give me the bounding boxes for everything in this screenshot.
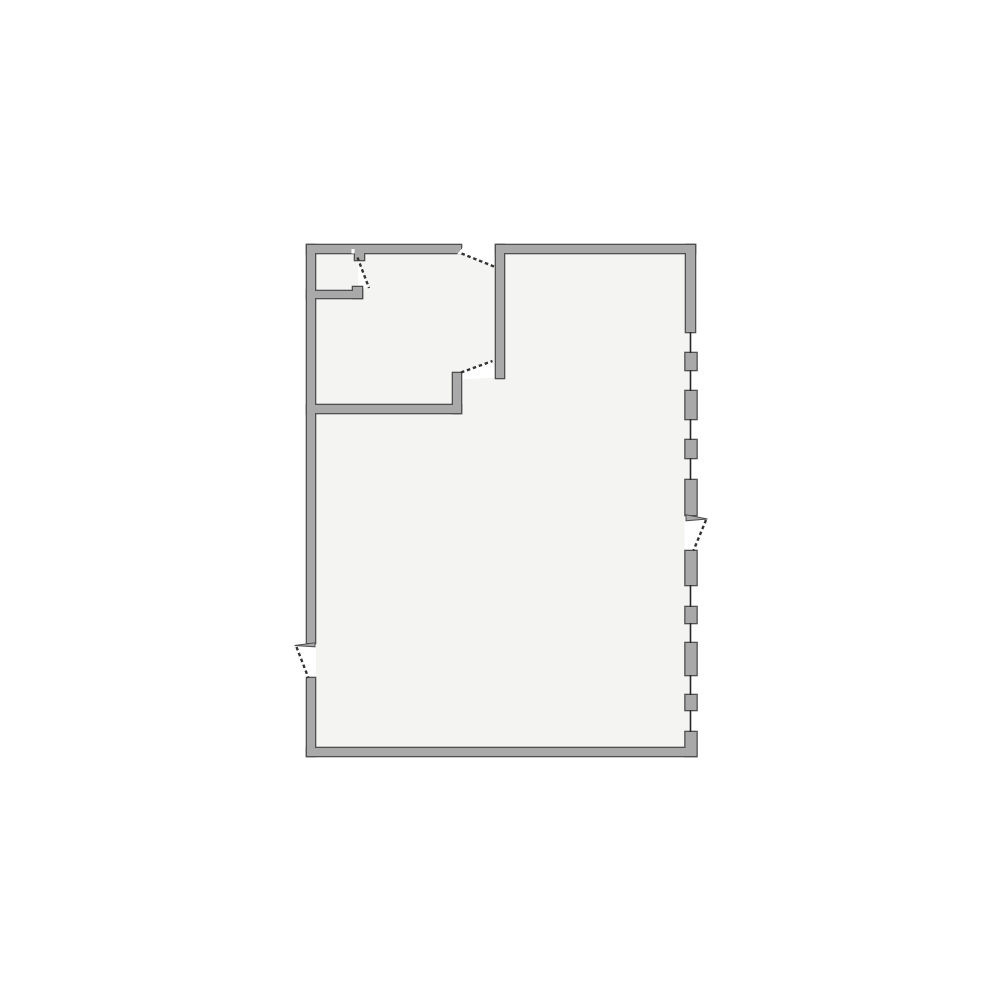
left-door-jamb-sliver (295, 643, 316, 647)
window-mullion-2 (686, 391, 697, 419)
wall-closet-hinge-stub (355, 253, 364, 260)
floor-plan-svg (0, 0, 1000, 1000)
wall-top-left (307, 245, 461, 253)
wall-top-right (496, 245, 695, 253)
window-mullion-7 (686, 643, 697, 675)
wall-interior-door-jamb (453, 373, 461, 413)
window-mullion-8 (686, 695, 697, 710)
wall-left-lower (307, 678, 315, 756)
closet-door-hinge-notch (352, 249, 355, 254)
top-door-opening (461, 244, 497, 255)
window-mullion-3 (686, 440, 697, 458)
wall-interior-horizontal (307, 405, 461, 413)
window-mullion-6 (686, 607, 697, 623)
window-mullion-5 (686, 551, 697, 585)
wall-closet-jamb-lip (353, 287, 362, 298)
wall-right-upper-solid (686, 245, 695, 332)
wall-right-bottom-corner (686, 732, 697, 756)
wall-left-upper (307, 245, 315, 643)
wall-bottom (307, 748, 696, 756)
window-mullion-4 (686, 480, 697, 515)
floor-plan-viewport (0, 0, 1000, 1000)
wall-interior-vertical (496, 245, 504, 378)
window-mullion-1 (686, 353, 697, 370)
